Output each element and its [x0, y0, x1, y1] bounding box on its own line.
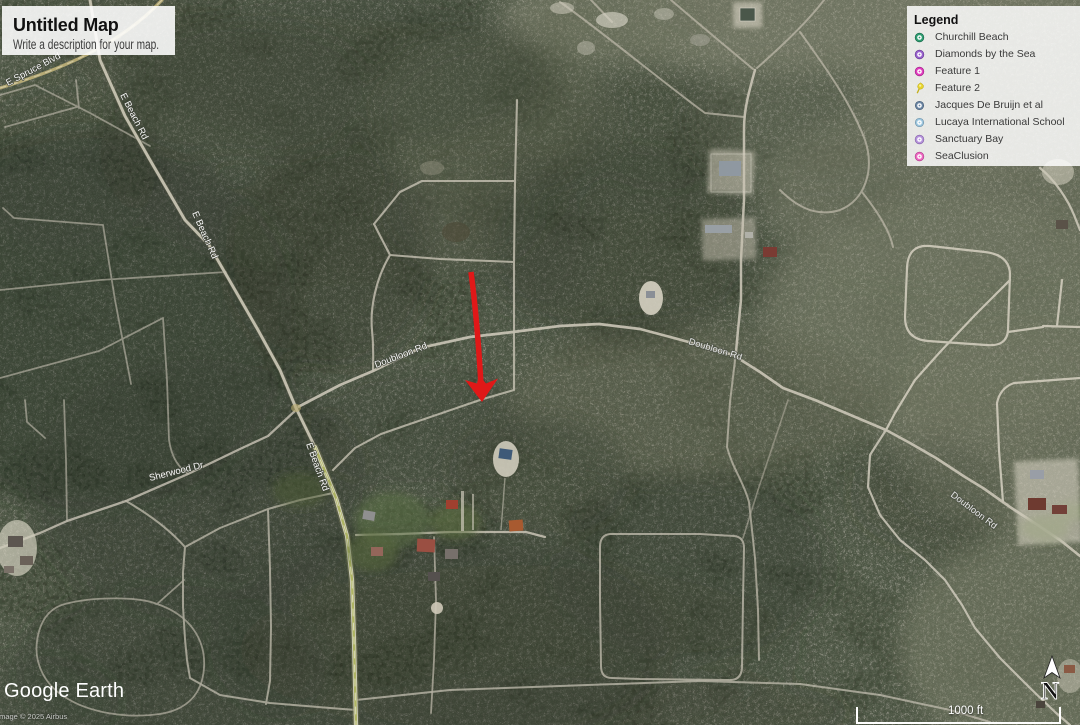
- svg-text:N: N: [1041, 678, 1059, 705]
